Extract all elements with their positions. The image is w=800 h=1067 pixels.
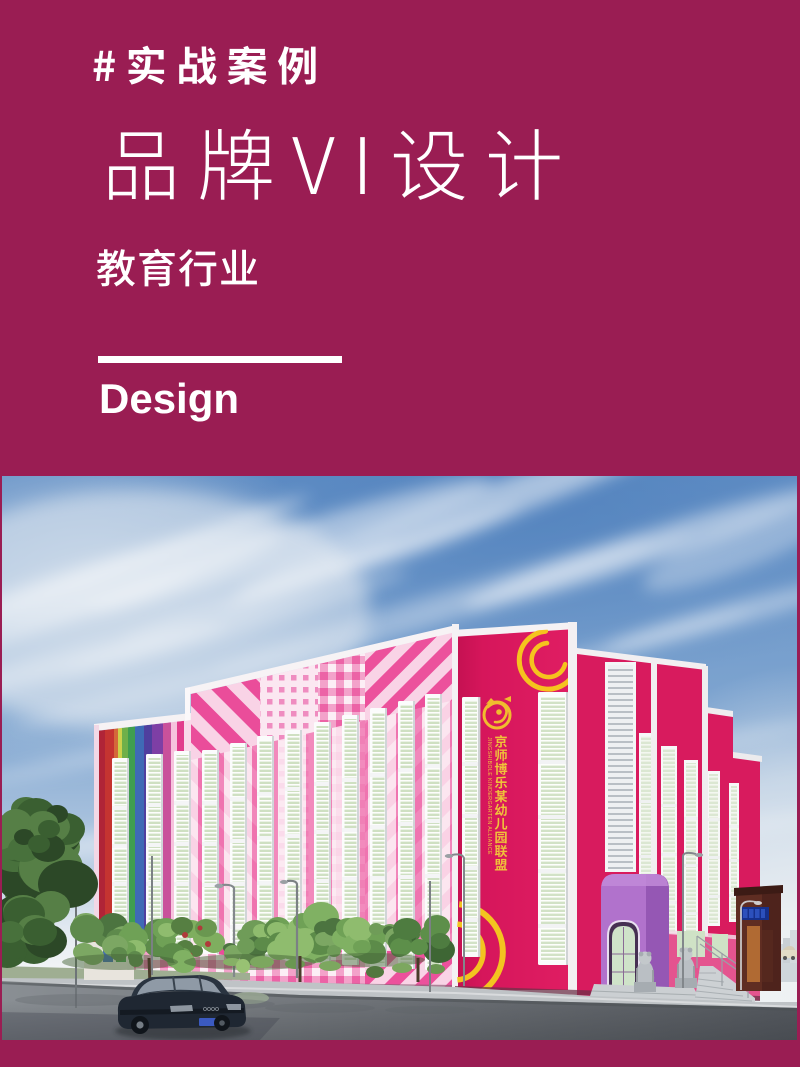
svg-text:JINGSHIBOLE KINDERGARTEN ALLIA: JINGSHIBOLE KINDERGARTEN ALLIANCE	[486, 737, 492, 855]
svg-text:Design: Design	[99, 375, 239, 422]
